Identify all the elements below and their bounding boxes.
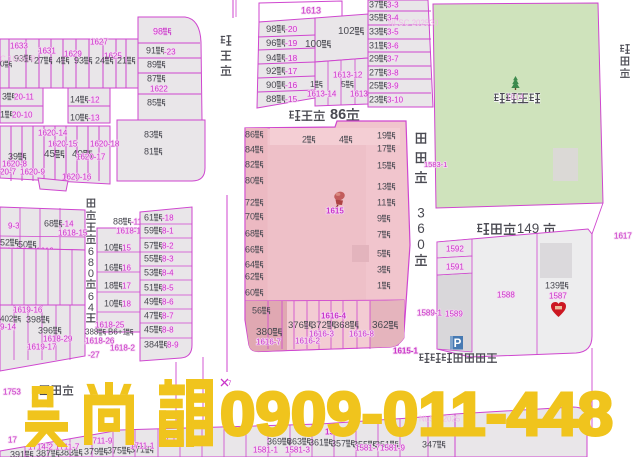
svg-text:-13: -13 xyxy=(88,114,100,123)
svg-text:1591: 1591 xyxy=(446,263,464,272)
svg-text:8-1: 8-1 xyxy=(162,227,174,236)
svg-text:102: 102 xyxy=(338,26,355,37)
svg-text:16: 16 xyxy=(122,264,131,273)
svg-text:376: 376 xyxy=(288,320,304,331)
svg-text:98: 98 xyxy=(153,26,163,36)
svg-text:4: 4 xyxy=(56,55,61,65)
svg-text:3: 3 xyxy=(2,91,7,101)
svg-text:18: 18 xyxy=(104,280,114,290)
svg-text:8-5: 8-5 xyxy=(162,284,174,293)
svg-text:1583-1: 1583-1 xyxy=(424,160,447,169)
svg-text:362: 362 xyxy=(372,320,389,331)
svg-text:375: 375 xyxy=(107,445,122,455)
svg-text:1589-1: 1589-1 xyxy=(417,309,442,318)
svg-text:-23: -23 xyxy=(164,48,176,57)
svg-text:380: 380 xyxy=(256,327,273,338)
svg-text:17: 17 xyxy=(377,143,387,153)
svg-text:86: 86 xyxy=(245,129,255,139)
svg-text:98: 98 xyxy=(266,24,277,35)
svg-text:1627: 1627 xyxy=(90,38,108,47)
svg-text:60: 60 xyxy=(245,287,255,297)
svg-text:100: 100 xyxy=(305,39,322,50)
svg-text:18: 18 xyxy=(122,300,131,309)
svg-text:9-14: 9-14 xyxy=(0,323,17,332)
svg-text:0909-011-448: 0909-011-448 xyxy=(220,380,613,448)
svg-text:1619-16: 1619-16 xyxy=(13,306,43,315)
svg-text:8-8: 8-8 xyxy=(162,326,174,335)
svg-text:8-6: 8-6 xyxy=(162,298,174,307)
svg-text:1587: 1587 xyxy=(549,292,567,301)
svg-text:64: 64 xyxy=(245,259,255,269)
svg-text:88: 88 xyxy=(266,94,277,105)
svg-text:33: 33 xyxy=(369,26,379,36)
svg-text:29: 29 xyxy=(369,53,379,63)
svg-text:1589: 1589 xyxy=(445,310,463,319)
svg-text:81: 81 xyxy=(144,146,154,156)
svg-text:-12: -12 xyxy=(88,96,100,105)
svg-text:56: 56 xyxy=(252,305,262,315)
svg-text:1622: 1622 xyxy=(150,85,168,94)
svg-text:14: 14 xyxy=(70,94,80,104)
svg-text:1616-8: 1616-8 xyxy=(349,330,374,339)
svg-text:4: 4 xyxy=(339,134,344,144)
svg-text:1: 1 xyxy=(310,79,315,89)
svg-text:45: 45 xyxy=(44,149,56,160)
svg-text:35: 35 xyxy=(369,12,379,22)
svg-text:68: 68 xyxy=(245,228,255,238)
svg-text:1620-17: 1620-17 xyxy=(76,153,106,162)
svg-text:8-9: 8-9 xyxy=(167,341,179,350)
svg-text:1615: 1615 xyxy=(326,207,344,216)
svg-text:1619-17: 1619-17 xyxy=(27,343,57,352)
svg-text:-19: -19 xyxy=(285,38,298,48)
svg-text:51: 51 xyxy=(144,282,154,292)
svg-text:1616-3: 1616-3 xyxy=(309,330,334,339)
svg-text:55: 55 xyxy=(144,253,154,263)
svg-text:1: 1 xyxy=(377,280,382,290)
svg-text:9: 9 xyxy=(377,213,382,223)
svg-text:0: 0 xyxy=(417,237,425,252)
svg-text:61: 61 xyxy=(144,212,154,222)
svg-text:10: 10 xyxy=(104,298,114,308)
svg-text:17: 17 xyxy=(8,436,17,445)
svg-text:1620-9: 1620-9 xyxy=(20,168,45,177)
svg-text:1620-16: 1620-16 xyxy=(62,173,92,182)
svg-text:49: 49 xyxy=(144,296,154,306)
svg-text:1616-4: 1616-4 xyxy=(321,312,346,321)
svg-text:96: 96 xyxy=(266,38,277,49)
svg-text:-16: -16 xyxy=(285,80,298,90)
svg-text:-14: -14 xyxy=(62,220,74,229)
svg-text:72: 72 xyxy=(245,197,255,207)
svg-text:3-10: 3-10 xyxy=(387,96,404,105)
svg-text:NLSC 202530: NLSC 202530 xyxy=(388,19,439,28)
svg-text:1618-15: 1618-15 xyxy=(58,229,88,238)
svg-text:8-7: 8-7 xyxy=(162,312,174,321)
svg-text:37: 37 xyxy=(369,0,379,9)
svg-text:3-9: 3-9 xyxy=(387,82,399,91)
svg-text:25: 25 xyxy=(369,80,379,90)
svg-text:1617: 1617 xyxy=(614,232,632,241)
svg-text:53: 53 xyxy=(144,267,154,277)
svg-text:B6+1: B6+1 xyxy=(108,328,127,337)
svg-text:57: 57 xyxy=(144,240,154,250)
svg-text:13: 13 xyxy=(377,181,387,191)
svg-text:-18: -18 xyxy=(285,53,298,63)
svg-text:139: 139 xyxy=(545,280,560,290)
svg-text:59: 59 xyxy=(144,225,154,235)
svg-text:1613-14: 1613-14 xyxy=(307,90,337,99)
svg-text:1618-2: 1618-2 xyxy=(110,344,135,353)
svg-text:388: 388 xyxy=(85,328,99,337)
svg-text:68: 68 xyxy=(44,218,54,228)
svg-text:8-4: 8-4 xyxy=(162,269,174,278)
svg-text:-15: -15 xyxy=(285,94,298,104)
svg-text:3: 3 xyxy=(417,205,425,220)
svg-text:384: 384 xyxy=(144,339,159,349)
svg-text:3-8: 3-8 xyxy=(387,69,399,78)
svg-text:89: 89 xyxy=(147,59,157,69)
svg-text:9-3: 9-3 xyxy=(8,222,20,231)
svg-text:94: 94 xyxy=(266,53,277,64)
svg-text:1620-18: 1620-18 xyxy=(90,140,120,149)
svg-text:91: 91 xyxy=(146,45,156,55)
svg-text:1620-15: 1620-15 xyxy=(48,140,78,149)
svg-text:2: 2 xyxy=(302,134,307,144)
svg-text:93: 93 xyxy=(74,55,84,65)
svg-text:-17: -17 xyxy=(285,66,298,76)
svg-text:24: 24 xyxy=(95,55,105,65)
svg-text:88: 88 xyxy=(113,216,123,226)
svg-text:1753: 1753 xyxy=(3,388,21,397)
svg-text:5: 5 xyxy=(377,248,382,258)
svg-text:1592: 1592 xyxy=(446,245,464,254)
svg-text:83: 83 xyxy=(144,129,154,139)
svg-text:1613-12: 1613-12 xyxy=(333,71,363,80)
svg-text:45: 45 xyxy=(144,324,154,334)
svg-text:-27: -27 xyxy=(88,351,100,360)
svg-text:23: 23 xyxy=(369,94,379,104)
svg-text:21: 21 xyxy=(117,55,127,65)
svg-text:87: 87 xyxy=(147,73,157,83)
svg-text:66: 66 xyxy=(245,244,255,254)
svg-text:85: 85 xyxy=(147,97,157,107)
svg-text:7: 7 xyxy=(377,229,382,239)
svg-text:1616-7: 1616-7 xyxy=(256,338,281,347)
svg-text:3-5: 3-5 xyxy=(387,28,399,37)
svg-text:1614: 1614 xyxy=(506,93,524,102)
svg-text:3-7: 3-7 xyxy=(387,55,399,64)
svg-text:1613: 1613 xyxy=(301,5,321,15)
svg-text:90: 90 xyxy=(266,80,277,91)
svg-text:47: 47 xyxy=(144,310,154,320)
svg-text:5: 5 xyxy=(341,79,346,89)
svg-text:15: 15 xyxy=(377,160,387,170)
svg-text:10: 10 xyxy=(104,242,114,252)
svg-text:P: P xyxy=(454,338,462,350)
svg-text:20-10: 20-10 xyxy=(12,111,33,120)
svg-text:62: 62 xyxy=(245,271,255,281)
svg-text:1: 1 xyxy=(0,109,5,119)
svg-text:3: 3 xyxy=(377,264,382,274)
svg-text:398: 398 xyxy=(26,314,41,324)
svg-text:27: 27 xyxy=(369,67,379,77)
svg-text:6: 6 xyxy=(417,221,425,236)
svg-text:1633: 1633 xyxy=(10,42,28,51)
svg-text:1631: 1631 xyxy=(38,47,56,56)
svg-text:1615-1: 1615-1 xyxy=(393,347,418,356)
svg-text:17: 17 xyxy=(122,282,131,291)
svg-text:3-6: 3-6 xyxy=(387,42,399,51)
svg-text:11: 11 xyxy=(377,197,386,207)
svg-text:0: 0 xyxy=(88,268,94,280)
svg-text:80: 80 xyxy=(245,175,255,185)
svg-text:4: 4 xyxy=(88,302,94,314)
svg-text:379: 379 xyxy=(84,446,99,456)
svg-text:368: 368 xyxy=(334,320,350,331)
svg-text:-20: -20 xyxy=(285,24,298,34)
svg-text:92: 92 xyxy=(266,66,277,77)
svg-text:391: 391 xyxy=(10,449,25,457)
svg-text:82: 82 xyxy=(245,159,255,169)
svg-text:8-2: 8-2 xyxy=(162,242,174,251)
svg-text:20-11: 20-11 xyxy=(14,93,34,102)
svg-text:16: 16 xyxy=(104,262,114,272)
svg-text:8-3: 8-3 xyxy=(162,255,174,264)
svg-text:84: 84 xyxy=(245,144,255,154)
svg-text:20-7: 20-7 xyxy=(0,168,17,177)
svg-text:C 10251B: C 10251B xyxy=(0,55,36,64)
svg-text:19: 19 xyxy=(377,130,387,140)
svg-text:1620-14: 1620-14 xyxy=(38,129,68,138)
svg-text:15: 15 xyxy=(122,244,131,253)
svg-text:70: 70 xyxy=(245,211,255,221)
svg-text:31: 31 xyxy=(369,40,379,50)
svg-text:-18: -18 xyxy=(162,214,174,223)
svg-text:3-3: 3-3 xyxy=(387,1,399,10)
svg-text:1588: 1588 xyxy=(497,291,515,300)
svg-text:10: 10 xyxy=(70,112,80,122)
